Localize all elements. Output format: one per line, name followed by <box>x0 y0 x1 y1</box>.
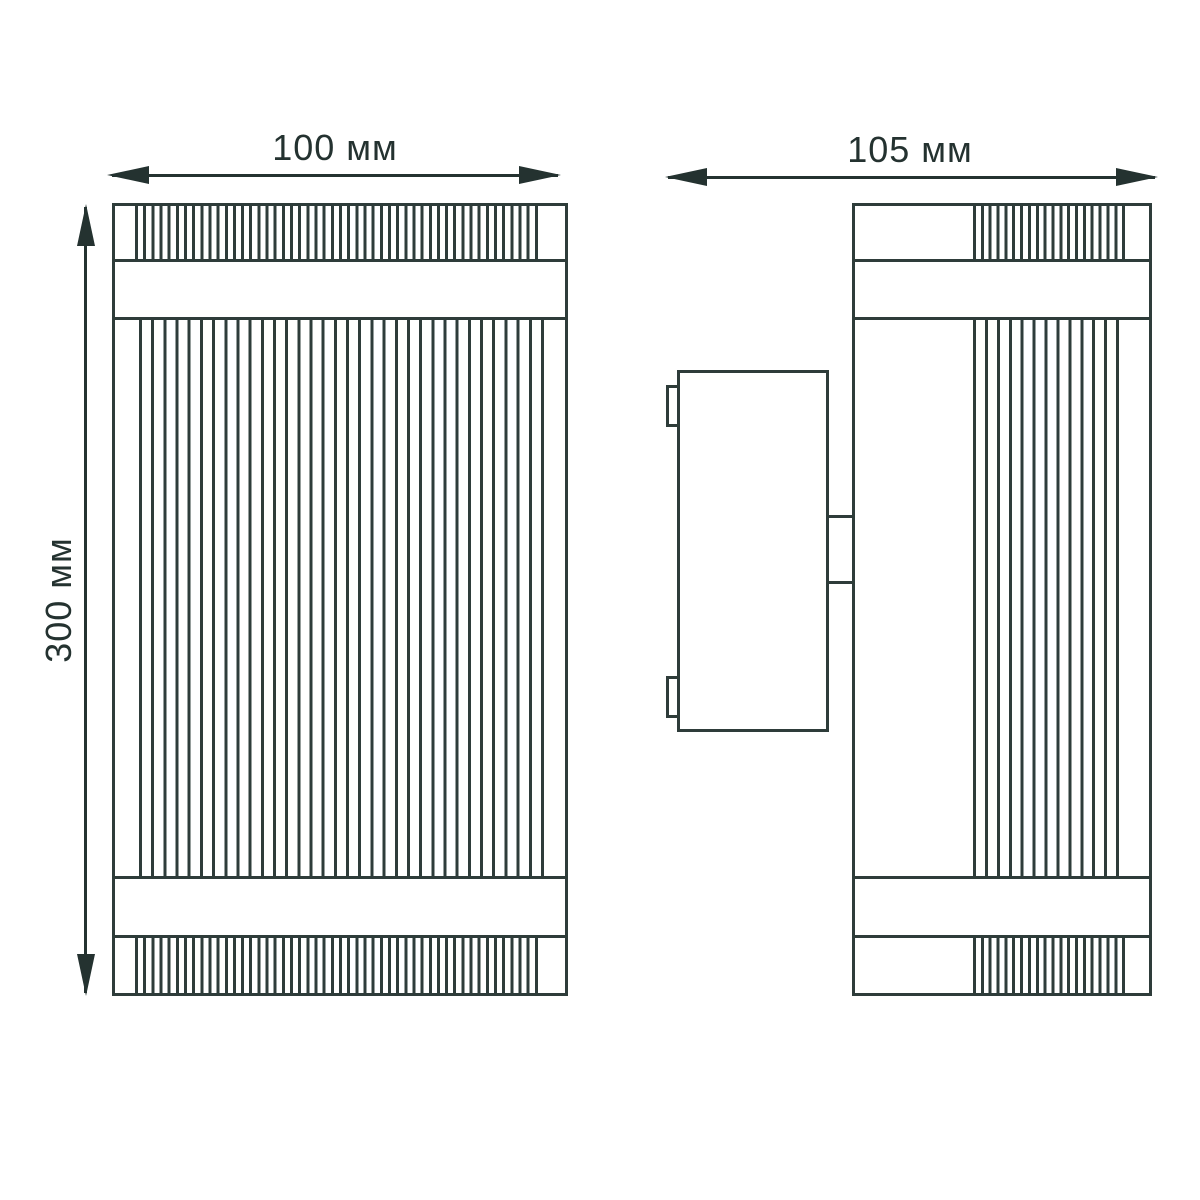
side-separator-lower <box>855 876 1149 879</box>
side-separator-upper <box>855 317 1149 320</box>
depth-dimension-label: 105 мм <box>847 132 973 168</box>
front-separator-lower <box>115 876 565 879</box>
height-arrowhead-bottom-icon <box>77 954 95 996</box>
width-dimension-label: 100 мм <box>272 130 398 166</box>
side-bottom-ribbed-band <box>973 938 1130 993</box>
width-arrowhead-right-icon <box>519 166 561 184</box>
front-separator-upper <box>115 317 565 320</box>
side-top-ribbed-band <box>973 206 1130 259</box>
depth-dimension-line <box>668 176 1155 179</box>
bracket-connector <box>826 515 855 584</box>
height-dimension-label: 300 мм <box>41 537 77 663</box>
height-dimension-line <box>84 207 87 993</box>
front-main-ribbed-panel <box>139 320 545 876</box>
depth-arrowhead-left-icon <box>665 168 707 186</box>
side-main-ribbed-panel <box>973 320 1128 876</box>
bracket-tab-upper <box>666 385 680 427</box>
width-dimension-line <box>112 174 558 177</box>
front-top-ribbed-band <box>135 206 543 259</box>
technical-drawing-canvas: 100 мм 105 мм 300 мм <box>0 0 1200 1200</box>
depth-arrowhead-right-icon <box>1116 168 1158 186</box>
side-separator-top-band <box>855 259 1149 262</box>
front-separator-top-band <box>115 259 565 262</box>
bracket-tab-lower <box>666 676 680 718</box>
wall-mount-bracket <box>677 370 829 732</box>
front-separator-bottom-band <box>115 935 565 938</box>
height-arrowhead-top-icon <box>77 204 95 246</box>
front-bottom-ribbed-band <box>135 938 543 993</box>
side-separator-bottom-band <box>855 935 1149 938</box>
width-arrowhead-left-icon <box>107 166 149 184</box>
